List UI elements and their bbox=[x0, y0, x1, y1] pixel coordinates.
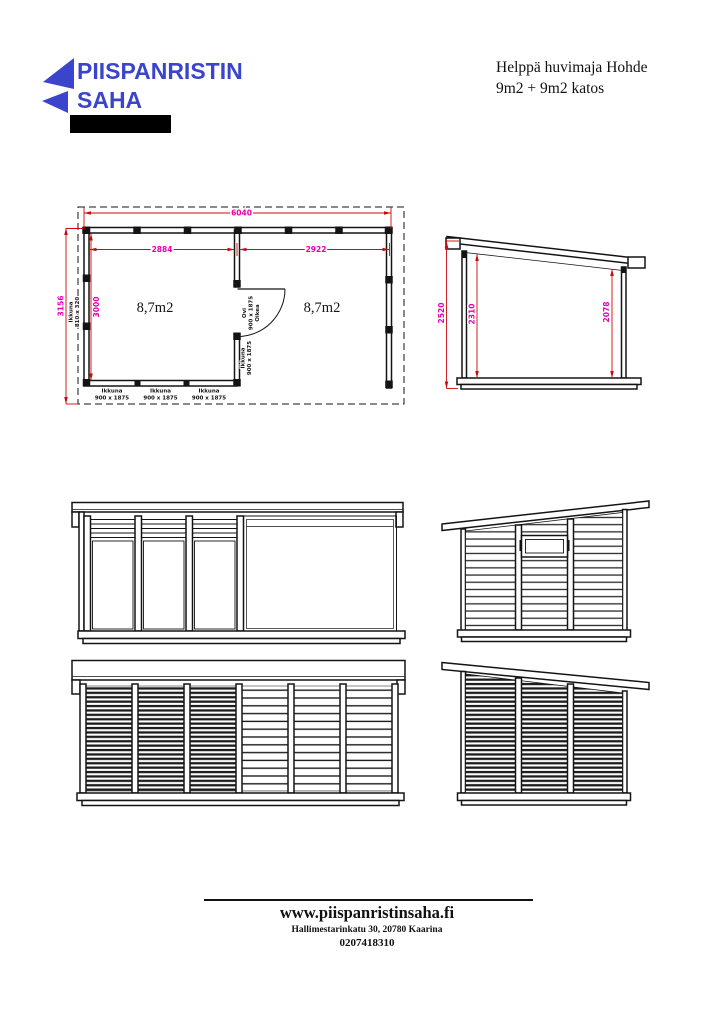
door-size: 900 x 1875 bbox=[249, 296, 255, 330]
rear-elevation bbox=[72, 661, 405, 806]
technical-drawings: 6040 2884 2922 3156 3000 8,7m2 8,7m2 Ikk… bbox=[0, 0, 724, 1024]
dim-overall-depth: 3156 bbox=[57, 296, 66, 317]
mid-window-word: Ikkuna bbox=[241, 347, 247, 368]
dim-right-room-width: 2922 bbox=[306, 245, 327, 254]
side-section: 2520 2310 2078 bbox=[437, 237, 645, 390]
base-band bbox=[77, 793, 404, 801]
right-wall bbox=[387, 230, 392, 388]
drawing-sheet: PIISPANRISTIN SAHA Helppä huvimaja Hohde… bbox=[0, 0, 724, 1024]
roof-outline-dashed bbox=[78, 207, 404, 404]
footer-website: www.piispanristinsaha.fi bbox=[152, 903, 582, 923]
louver-wall bbox=[466, 674, 623, 793]
section-left-wall bbox=[462, 251, 467, 378]
front-window-3-size: 900 x 1875 bbox=[192, 396, 226, 402]
door-hand: Oikea bbox=[255, 304, 261, 322]
side-window-size: 810 x 320 bbox=[75, 297, 81, 328]
side-elevation-window bbox=[442, 501, 649, 642]
dim-inner-front-height: 2310 bbox=[468, 304, 477, 325]
middle-wall-lower bbox=[235, 336, 240, 386]
fascia bbox=[72, 503, 403, 513]
left-wall bbox=[84, 230, 89, 384]
base-band bbox=[458, 793, 631, 801]
door-word: Ovi bbox=[242, 308, 248, 318]
plan-dimensions: 6040 2884 2922 3156 3000 bbox=[57, 207, 392, 404]
base-band bbox=[78, 631, 405, 639]
front-window-1-size: 900 x 1875 bbox=[95, 396, 129, 402]
side-window-word: Ikkuna bbox=[69, 301, 75, 322]
side-elevation-louvered bbox=[442, 663, 649, 806]
front-window-2-word: Ikkuna bbox=[150, 389, 171, 395]
dim-left-room-width: 2884 bbox=[152, 245, 173, 254]
dim-front-height: 2520 bbox=[437, 303, 446, 324]
footer-phone: 0207418310 bbox=[152, 937, 582, 949]
left-room-area: 8,7m2 bbox=[137, 300, 174, 316]
footer-address: Hallimestarinkatu 30, 20780 Kaarina bbox=[152, 925, 582, 935]
fascia bbox=[72, 661, 405, 681]
small-window bbox=[520, 536, 570, 558]
front-window-2-size: 900 x 1875 bbox=[143, 396, 177, 402]
horizontal-siding bbox=[466, 513, 623, 631]
mid-window-size: 900 x 1875 bbox=[247, 341, 253, 375]
dim-inner-back-height: 2078 bbox=[602, 302, 611, 323]
middle-wall-upper bbox=[235, 230, 240, 287]
dim-overall-width: 6040 bbox=[231, 209, 252, 218]
louver-panels bbox=[80, 684, 398, 793]
floor-plan: 6040 2884 2922 3156 3000 8,7m2 8,7m2 Ikk… bbox=[57, 207, 405, 404]
dim-room-depth: 3000 bbox=[92, 297, 101, 318]
base-band bbox=[458, 630, 631, 637]
right-room-area: 8,7m2 bbox=[304, 300, 341, 316]
front-elevation bbox=[72, 503, 405, 644]
open-canopy bbox=[244, 516, 397, 631]
front-window-1-word: Ikkuna bbox=[102, 389, 123, 395]
section-right-wall bbox=[622, 267, 627, 378]
front-wall bbox=[84, 381, 237, 387]
section-floor bbox=[457, 378, 641, 385]
front-window-3-word: Ikkuna bbox=[199, 389, 220, 395]
footer-divider bbox=[204, 899, 533, 901]
glazed-panels bbox=[84, 516, 244, 631]
